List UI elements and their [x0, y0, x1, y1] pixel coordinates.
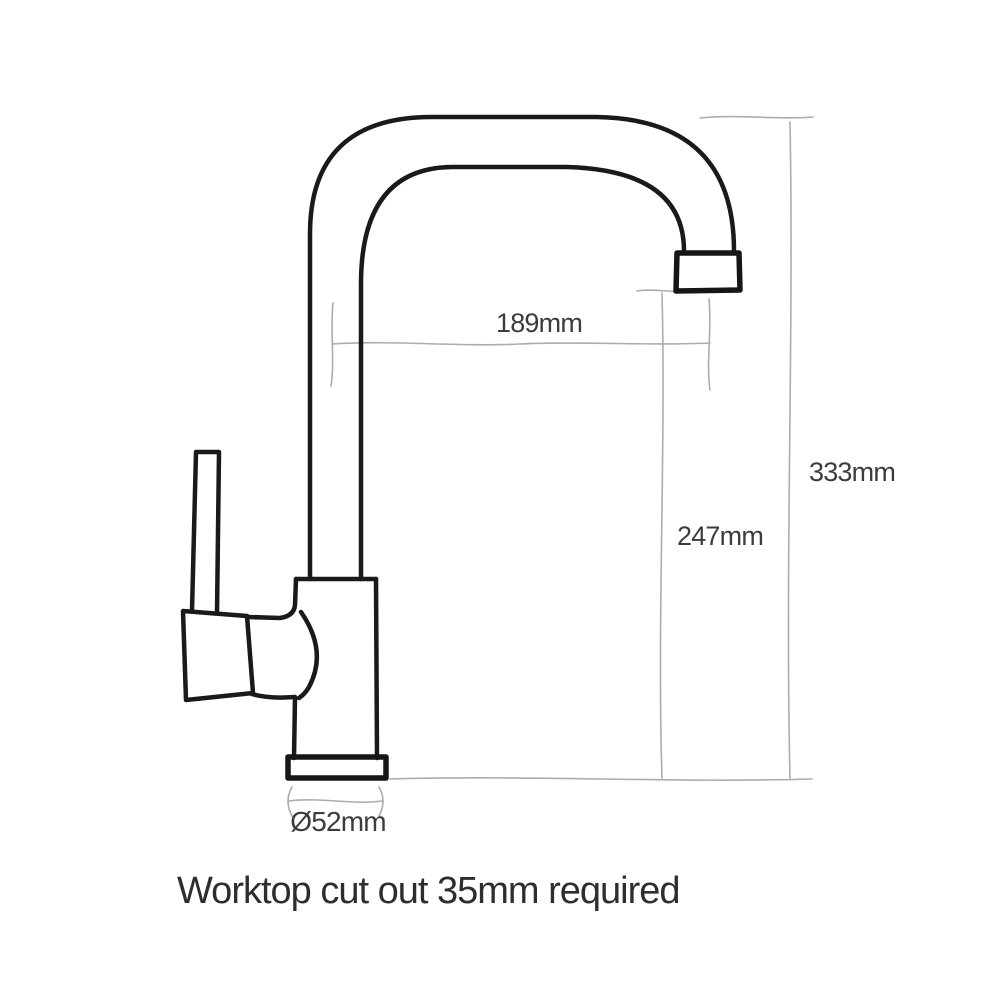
- dim-label-spout-clearance: 247mm: [677, 523, 763, 550]
- spout-inner-path: [361, 167, 684, 579]
- faucet-drawing: [0, 0, 1000, 1000]
- dim-label-overall-height: 333mm: [809, 459, 895, 486]
- worktop-note: Worktop cut out 35mm required: [177, 872, 680, 910]
- dim-label-spout-reach: 189mm: [496, 310, 582, 337]
- base-flange: [288, 757, 386, 778]
- dim-333-extension: [700, 117, 813, 118]
- worktop-reference-line: [390, 778, 812, 780]
- dim-333-line: [788, 122, 791, 778]
- dim-189-line: [332, 343, 710, 345]
- body-left-lower: [252, 694, 295, 758]
- handle-base-block: [183, 611, 253, 700]
- dim-189-tick-left: [331, 303, 333, 386]
- dim-247-line: [660, 293, 663, 778]
- aerator-tip: [676, 253, 740, 291]
- faucet-dimension-diagram: 189mm 333mm 247mm Ø52mm Worktop cut out …: [0, 0, 1000, 1000]
- body-right-side: [376, 579, 377, 758]
- dim-label-base-diameter: Ø52mm: [290, 808, 386, 836]
- faucet-outline: [183, 117, 740, 778]
- dim-52-line: [289, 800, 382, 802]
- dim-189-tick-right: [709, 299, 710, 390]
- spout-outer-path: [310, 117, 734, 579]
- body-left-upper: [248, 579, 296, 618]
- handle-lever: [192, 452, 219, 613]
- joint-arc: [299, 612, 317, 698]
